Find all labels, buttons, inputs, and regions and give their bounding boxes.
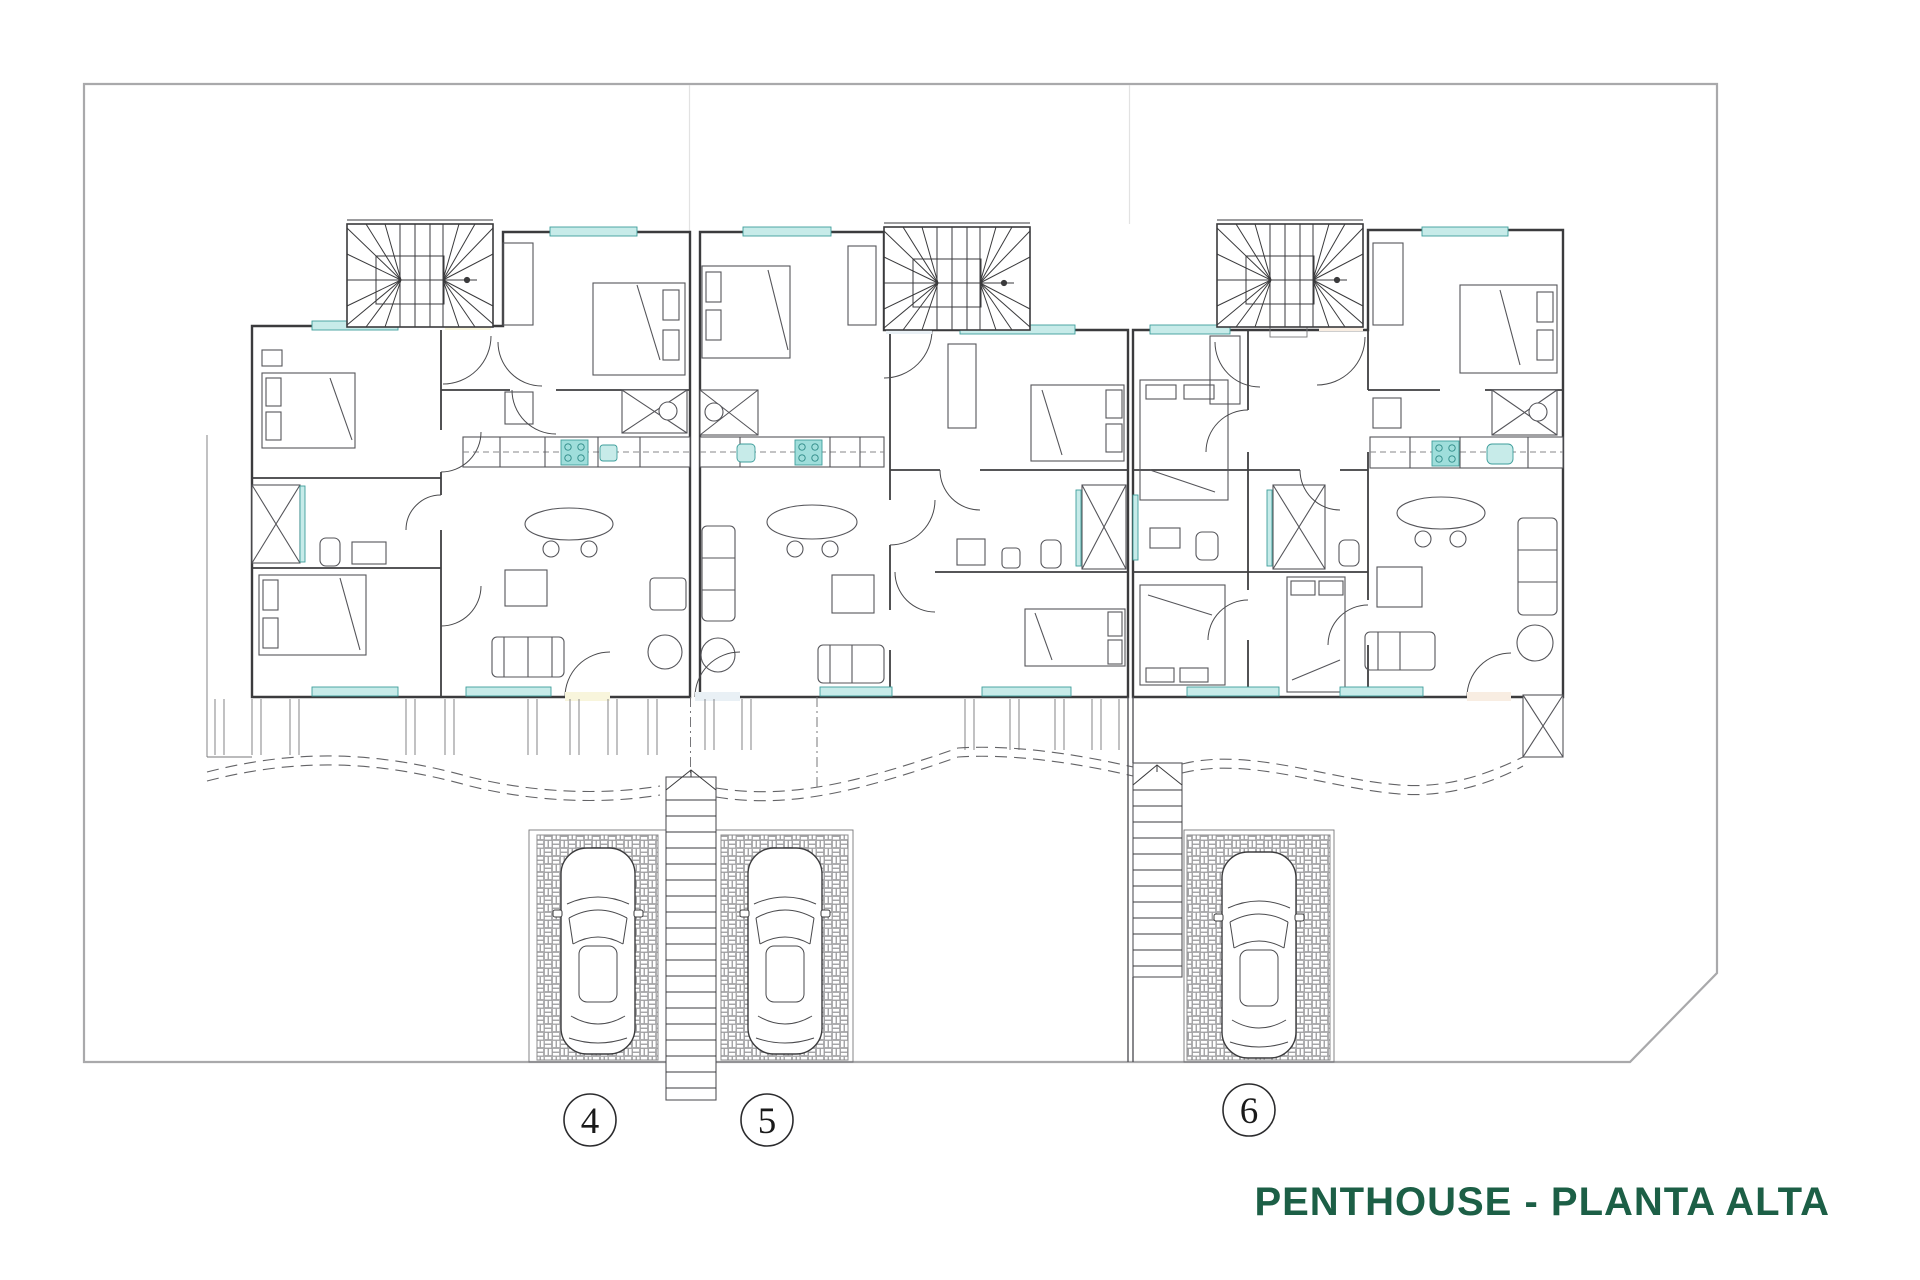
toilet-icon (320, 538, 340, 566)
hob-icon (1432, 441, 1459, 466)
coffee-table-icon (505, 570, 547, 606)
floor-plan-page: 4 5 6 PENTHOUSE - PLANTA ALTA (0, 0, 1920, 1280)
bed-icon (503, 243, 685, 375)
bed-icon (1140, 336, 1240, 500)
toilet-icon (1196, 532, 1218, 560)
parking-area (529, 830, 1334, 1062)
hob-icon (561, 440, 588, 465)
sink-icon (600, 445, 617, 461)
bed-icon (259, 575, 366, 655)
unit-6-badge: 6 (1223, 1084, 1275, 1136)
toilet-icon (1339, 540, 1359, 566)
car-icon (740, 848, 830, 1054)
sink-counter-icon (622, 390, 687, 433)
bed-icon (948, 344, 1124, 461)
bed-icon (262, 350, 355, 448)
washbasin-icon (1150, 528, 1180, 548)
unit-4-badge: 4 (564, 1094, 616, 1146)
sofa-icon (702, 526, 735, 621)
floor-plan-canvas: 4 5 6 PENTHOUSE - PLANTA ALTA (0, 0, 1920, 1280)
sink-counter-icon (700, 390, 758, 435)
bidet-icon (1002, 548, 1020, 568)
garden-path (207, 747, 1523, 800)
unit-5-badge: 5 (741, 1094, 793, 1146)
shower-icon (1273, 485, 1325, 569)
svg-text:6: 6 (1240, 1091, 1259, 1132)
toilet-icon (1041, 540, 1061, 568)
bed-icon (1287, 577, 1345, 692)
washer-icon (505, 392, 533, 424)
shower-icon (252, 485, 300, 563)
sink-icon (1487, 444, 1513, 464)
bed-icon (1140, 585, 1225, 685)
bed-icon (1373, 243, 1557, 373)
sofa-icon (818, 645, 884, 683)
staircase-icon (884, 223, 1030, 330)
coffee-table-icon (1377, 567, 1422, 607)
bed-icon (1025, 609, 1125, 666)
coffee-table-icon (832, 575, 874, 613)
planter-icon (1523, 695, 1563, 757)
plan-title: PENTHOUSE - PLANTA ALTA (1254, 1180, 1830, 1224)
sink-counter-icon (1492, 390, 1557, 435)
round-table-icon (648, 635, 682, 669)
washbasin-icon (352, 542, 386, 564)
sink-icon (737, 444, 755, 462)
island-table-icon (1397, 497, 1485, 529)
svg-text:5: 5 (758, 1101, 777, 1142)
car-icon (553, 848, 643, 1054)
car-icon (1214, 852, 1304, 1058)
washer-icon (1373, 398, 1401, 428)
bed-icon (702, 246, 876, 358)
staircase-icon (347, 220, 493, 327)
round-table-icon (1517, 625, 1553, 661)
sofa-icon (492, 637, 564, 677)
sofa-icon (1365, 632, 1435, 670)
sofa-icon (1518, 518, 1557, 615)
washbasin-icon (957, 539, 985, 565)
island-table-icon (525, 508, 613, 540)
island-table-icon (767, 505, 857, 539)
hob-icon (795, 440, 822, 465)
armchair-icon (650, 578, 686, 610)
svg-text:4: 4 (581, 1101, 600, 1142)
shower-icon (1082, 485, 1126, 569)
staircase-icon (1217, 220, 1363, 327)
